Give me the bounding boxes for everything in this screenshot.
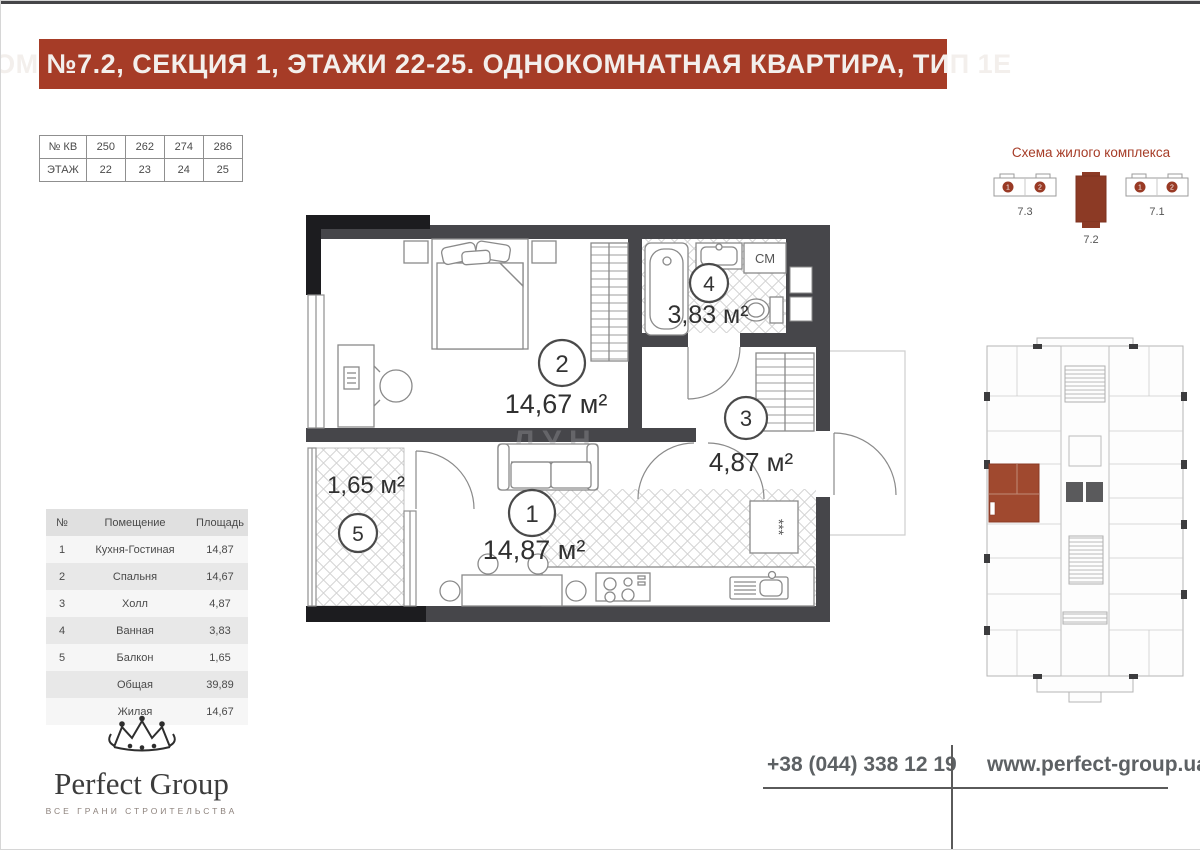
flyer-page: ДОМ №7.2, СЕКЦИЯ 1, ЭТАЖИ 22-25. ОДНОКОМ…	[0, 0, 1200, 850]
washing-machine-label: СМ	[755, 251, 775, 266]
total-area-label: Общая	[78, 671, 192, 698]
svg-text:4,87 м²: 4,87 м²	[709, 447, 794, 477]
duct-shaft	[790, 297, 812, 321]
apt-number: 286	[203, 136, 242, 159]
chair	[566, 581, 586, 601]
website-url: www.perfect-group.ua	[987, 753, 1200, 777]
rooms-summary-table: № Помещение Площадь 1 Кухня-Гостиная 14,…	[46, 509, 248, 725]
floor-number: 23	[125, 159, 164, 182]
floor-number: 25	[203, 159, 242, 182]
nightstand	[532, 241, 556, 263]
svg-text:1: 1	[525, 501, 538, 528]
table-row: № КВ 250 262 274 286	[40, 136, 243, 159]
building-7-3: 1 2 7.3	[992, 170, 1058, 218]
vestibule	[1063, 612, 1107, 624]
room-name: Спальня	[78, 563, 192, 590]
nightstand	[404, 241, 428, 263]
building-label: 7.2	[1083, 234, 1098, 246]
room-area: 14,67	[192, 563, 248, 590]
building-7-2-highlighted: 7.2	[1070, 170, 1112, 246]
pillow	[462, 250, 491, 265]
stairs	[1065, 366, 1105, 402]
table-row-total: Общая 39,89	[46, 671, 248, 698]
col-header-room: Помещение	[78, 509, 192, 536]
header-banner: ДОМ №7.2, СЕКЦИЯ 1, ЭТАЖИ 22-25. ОДНОКОМ…	[39, 39, 947, 89]
bathroom-door	[688, 347, 740, 399]
building-floor-plate	[973, 336, 1198, 706]
brand-tagline: ВСЕ ГРАНИ СТРОИТЕЛЬСТВА	[39, 806, 244, 816]
floor-number: 22	[86, 159, 125, 182]
room-name: Ванная	[78, 617, 192, 644]
toilet	[770, 297, 783, 323]
entry-door	[834, 433, 896, 495]
col-header-area: Площадь	[192, 509, 248, 536]
room-area: 3,83	[192, 617, 248, 644]
brand-logo: Perfect Group ВСЕ ГРАНИ СТРОИТЕЛЬСТВА	[39, 715, 244, 816]
total-area-value: 39,89	[192, 671, 248, 698]
building-7-1: 1 2 7.1	[1124, 170, 1190, 218]
svg-text:2: 2	[555, 351, 568, 378]
building-label: 7.1	[1149, 206, 1164, 218]
table-row: 3 Холл 4,87	[46, 590, 248, 617]
svg-text:14,87 м²: 14,87 м²	[483, 535, 586, 565]
floor-row-label: ЭТАЖ	[40, 159, 87, 182]
svg-text:2: 2	[1038, 185, 1042, 192]
room-name: Холл	[78, 590, 192, 617]
chair	[440, 581, 460, 601]
balcony-door	[416, 451, 474, 509]
room-area: 14,87	[192, 536, 248, 563]
complex-scheme: Схема жилого комплекса 1 2 7.3	[986, 145, 1196, 246]
fridge-marks: ***	[771, 519, 787, 536]
apartment-floor-table: № КВ 250 262 274 286 ЭТАЖ 22 23 24 25	[39, 135, 243, 182]
contact-vertical-divider	[951, 745, 953, 849]
svg-text:2: 2	[1170, 185, 1174, 192]
svg-text:3: 3	[740, 406, 752, 431]
apt-number: 274	[164, 136, 203, 159]
contact-divider-line	[763, 787, 1168, 789]
elevator	[1086, 482, 1103, 502]
crown-icon	[82, 715, 202, 759]
building-7-1-icon: 1 2	[1124, 170, 1190, 204]
svg-text:1,65 м²: 1,65 м²	[327, 472, 405, 499]
room-number: 1	[46, 536, 78, 563]
apt-number: 262	[125, 136, 164, 159]
room-area: 4,87	[192, 590, 248, 617]
svg-text:4: 4	[703, 273, 715, 296]
room-number: 4	[46, 617, 78, 644]
complex-scheme-title: Схема жилого комплекса	[986, 145, 1196, 160]
svg-text:1: 1	[1006, 185, 1010, 192]
stairs	[1069, 536, 1103, 584]
building-7-2-icon	[1070, 170, 1112, 232]
room-number: 5	[46, 644, 78, 671]
page-title: ДОМ №7.2, СЕКЦИЯ 1, ЭТАЖИ 22-25. ОДНОКОМ…	[0, 49, 1012, 80]
brand-name: Perfect Group	[39, 766, 244, 802]
svg-text:1: 1	[1138, 185, 1142, 192]
svg-text:14,67 м²: 14,67 м²	[505, 389, 608, 419]
room-number: 3	[46, 590, 78, 617]
building-label: 7.3	[1017, 206, 1032, 218]
floor-number: 24	[164, 159, 203, 182]
apt-number: 250	[86, 136, 125, 159]
room-number: 2	[46, 563, 78, 590]
desk-chair	[380, 370, 412, 402]
room-name: Балкон	[78, 644, 192, 671]
table-row: ЭТАЖ 22 23 24 25	[40, 159, 243, 182]
room-number	[46, 671, 78, 698]
building-7-3-icon: 1 2	[992, 170, 1058, 204]
table-row: 1 Кухня-Гостиная 14,87	[46, 536, 248, 563]
room-name: Кухня-Гостиная	[78, 536, 192, 563]
table-row: 5 Балкон 1,65	[46, 644, 248, 671]
room-area: 1,65	[192, 644, 248, 671]
phone-number: +38 (044) 338 12 19	[767, 753, 957, 777]
page-top-edge	[1, 1, 1200, 4]
apt-row-label: № КВ	[40, 136, 87, 159]
col-header-number: №	[46, 509, 78, 536]
table-row: 2 Спальня 14,67	[46, 563, 248, 590]
highlighted-apartment	[989, 464, 1039, 522]
apartment-floor-plan: ЛУН	[304, 203, 914, 658]
elevator	[1066, 482, 1083, 502]
dining-table	[462, 575, 562, 606]
table-header-row: № Помещение Площадь	[46, 509, 248, 536]
table-row: 4 Ванная 3,83	[46, 617, 248, 644]
svg-text:5: 5	[352, 523, 364, 546]
duct-shaft	[790, 267, 812, 293]
svg-text:3,83 м²: 3,83 м²	[667, 301, 748, 329]
